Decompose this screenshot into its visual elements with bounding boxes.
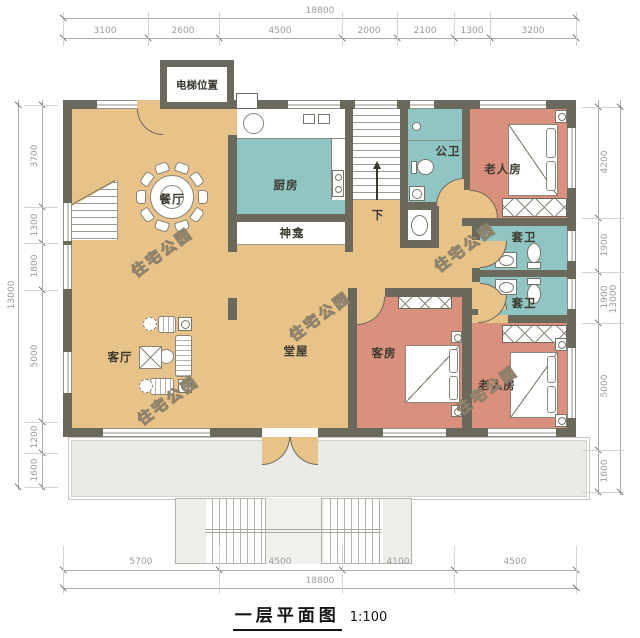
dim-extension-line (219, 546, 220, 594)
wall-bath-left-2 (472, 268, 480, 282)
label-dining: 餐厅 (160, 191, 185, 207)
window (480, 100, 546, 109)
pillow (546, 128, 556, 158)
dim-extension-line (582, 218, 624, 219)
wall-guest-top (385, 288, 463, 297)
dim-line-left-seg (42, 100, 43, 490)
shower-divider (408, 140, 462, 141)
dim-bottom-0: 5700 (130, 557, 153, 567)
label-elevator: 电梯位置 (176, 78, 218, 93)
dim-bottom-2: 4100 (387, 557, 410, 567)
window (488, 428, 556, 437)
dim-extension-line (24, 243, 58, 244)
dim-extension-line (454, 546, 455, 594)
dim-right-0: 4200 (600, 151, 610, 174)
flue-box (236, 93, 258, 109)
dim-bottom-total: 18800 (306, 576, 335, 586)
nightstand (555, 414, 567, 427)
window (567, 348, 576, 418)
dim-bottom-1: 4500 (269, 557, 292, 567)
dim-line-right-seg (598, 100, 599, 495)
dim-top-2: 4500 (269, 26, 292, 36)
dim-extension-line (24, 422, 58, 423)
dim-top-0: 3100 (94, 26, 117, 36)
label-living: 客厅 (108, 349, 133, 365)
wall-stub-living (228, 298, 237, 320)
kitchen-sink (243, 113, 264, 134)
window (103, 428, 210, 437)
window (567, 279, 576, 309)
dim-line-top-total (63, 18, 576, 19)
dim-extension-line (582, 323, 624, 324)
dim-top-1: 2600 (172, 26, 195, 36)
window (355, 100, 397, 109)
wall-nook-bottom (400, 240, 439, 248)
pillow (547, 356, 556, 383)
wall-bath-bottom (508, 315, 567, 323)
dim-extension-line (397, 12, 398, 46)
window (410, 100, 434, 109)
pillow (449, 376, 458, 400)
dim-extension-line (24, 105, 58, 106)
dim-extension-line (148, 12, 149, 46)
nightstand (451, 331, 462, 343)
dim-line-bottom-total (63, 588, 576, 589)
window (567, 128, 576, 188)
dim-top-4: 2100 (414, 26, 437, 36)
window (63, 352, 72, 393)
title-scale: 1:100 (350, 610, 387, 625)
ensuite-top-toilet (527, 243, 541, 263)
armchair (158, 316, 176, 333)
dim-extension-line (582, 450, 624, 451)
dim-extension-line (342, 546, 343, 594)
dining-chair (136, 190, 146, 204)
kitchen-stove (332, 170, 344, 197)
dim-line-right-total (620, 100, 621, 495)
stair-handrail (205, 529, 382, 533)
window (63, 245, 72, 289)
pillow (547, 386, 556, 413)
dim-left-total: 13000 (7, 281, 17, 310)
drawing-title: 一层平面图1:100 (160, 601, 460, 631)
label-public-bath: 公卫 (436, 143, 461, 159)
dim-left-2: 1800 (30, 255, 40, 278)
wardrobe-elder-top (502, 198, 567, 217)
label-ensuite-bottom: 套卫 (512, 295, 537, 311)
shower-drain (412, 122, 421, 131)
wall-hall-guest (348, 288, 357, 428)
dim-extension-line (454, 12, 455, 46)
label-stairs-down: 下 (372, 207, 385, 223)
wall-kitchen-bottom (237, 214, 353, 222)
plant (139, 379, 153, 393)
dim-extension-line (490, 12, 491, 46)
window (383, 428, 446, 437)
label-guest: 客房 (372, 345, 397, 361)
window (567, 231, 576, 261)
wall-kitchen-dining (228, 135, 237, 252)
pillow (546, 161, 556, 191)
side-table (178, 317, 192, 331)
dim-extension-line (582, 272, 624, 273)
dim-left-5: 1600 (30, 459, 40, 482)
pillow (449, 349, 458, 373)
dim-left-1: 1300 (30, 214, 40, 237)
dim-extension-line (24, 487, 58, 488)
label-shrine: 神龛 (280, 225, 305, 241)
dim-top-5: 1300 (461, 26, 484, 36)
dim-extension-line (24, 453, 58, 454)
kitchen-appliance (318, 114, 330, 124)
kitchen-appliance (303, 114, 315, 124)
title-text: 一层平面图 (233, 601, 342, 631)
ensuite-top-toilet-tank (527, 262, 541, 269)
dim-left-0: 3700 (30, 145, 40, 168)
wall-stair-bath (400, 109, 408, 248)
washing-machine (409, 186, 425, 201)
porch-terrace (68, 437, 590, 500)
dim-right-total: 13000 (609, 285, 619, 314)
wall-kitchen-stair (345, 109, 353, 252)
window (63, 203, 72, 241)
dim-right-2: 1900 (600, 286, 610, 309)
dim-left-4: 1200 (30, 426, 40, 449)
label-kitchen: 厨房 (274, 177, 299, 193)
dim-top-6: 3200 (522, 26, 545, 36)
toilet-bowl (417, 159, 434, 175)
dim-line-left-total (18, 100, 19, 490)
dim-bottom-3: 4500 (504, 557, 527, 567)
dim-line-top-seg (63, 38, 576, 39)
dim-line-bottom-seg (63, 570, 576, 571)
label-ensuite-top: 套卫 (512, 229, 537, 245)
dim-right-3: 5000 (600, 375, 610, 398)
window (288, 100, 340, 109)
dim-extension-line (24, 207, 58, 208)
dim-extension-line (24, 290, 58, 291)
coffee-table (139, 346, 162, 369)
nightstand (555, 338, 567, 351)
dim-extension-line (342, 12, 343, 46)
dim-left-3: 5000 (30, 345, 40, 368)
label-elder-top: 老人房 (484, 161, 522, 177)
stair-arrow-head (373, 161, 381, 169)
plant (143, 317, 157, 331)
dining-chair (198, 190, 208, 204)
washbasin (411, 215, 428, 236)
dim-right-1: 1900 (600, 234, 610, 257)
dim-top-3: 2000 (358, 26, 381, 36)
dim-extension-line (219, 12, 220, 46)
dim-right-4: 1600 (600, 460, 610, 483)
dim-top-total: 18800 (306, 6, 335, 16)
floor-plan-canvas: 电梯位置 餐厅 厨房 神龛 公卫 老人房 套卫 套卫 堂屋 客厅 客房 老人房 … (0, 0, 640, 638)
wall-bath-divider (480, 270, 567, 277)
stair-arrow-line (376, 168, 378, 200)
nightstand (555, 110, 567, 123)
